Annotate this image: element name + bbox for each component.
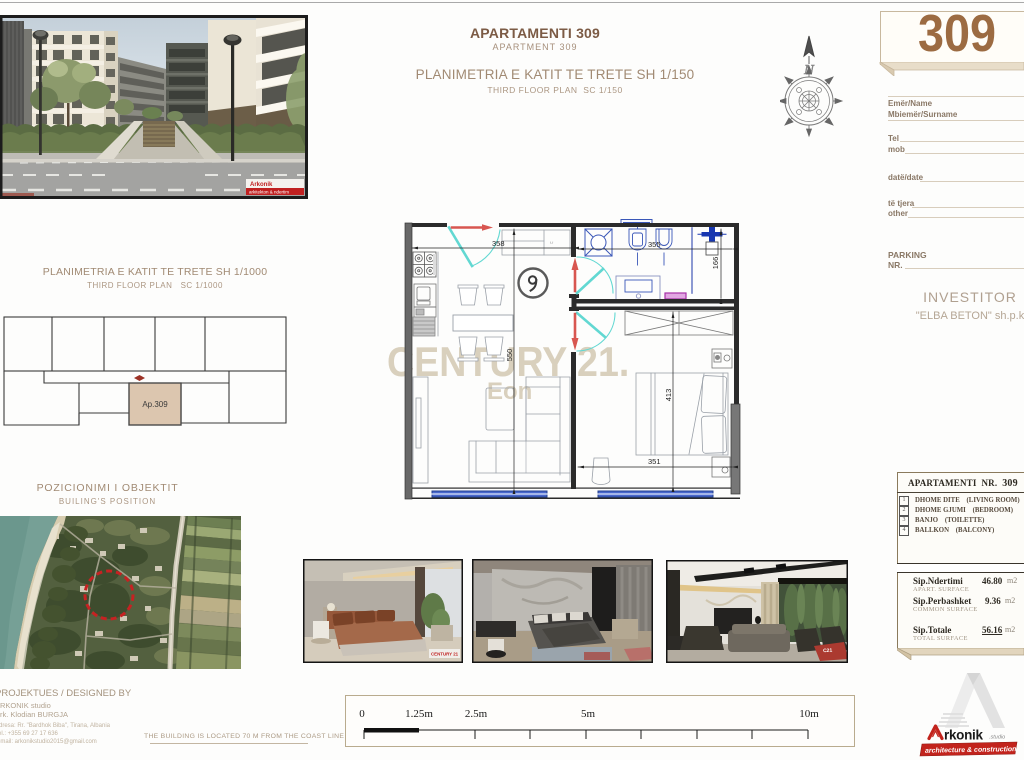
svg-text:10m: 10m xyxy=(799,708,819,720)
svg-text:0: 0 xyxy=(359,708,365,720)
svg-text:.studio: .studio xyxy=(989,735,1005,741)
svg-text:f-f: f-f xyxy=(550,241,553,245)
svg-text:413: 413 xyxy=(664,389,673,402)
svg-text:arkitekton & ndertim: arkitekton & ndertim xyxy=(249,190,289,195)
svg-text:rkonik: rkonik xyxy=(944,728,984,743)
svg-text:Arkonik: Arkonik xyxy=(250,182,273,188)
svg-text:1.25m: 1.25m xyxy=(405,708,433,720)
svg-text:2.5m: 2.5m xyxy=(465,708,488,720)
svg-text:358: 358 xyxy=(492,239,505,248)
svg-text:5m: 5m xyxy=(581,708,596,720)
svg-text:C21: C21 xyxy=(823,648,833,654)
svg-text:550: 550 xyxy=(505,349,514,362)
svg-text:CENTURY 21: CENTURY 21 xyxy=(431,651,459,656)
svg-text:351: 351 xyxy=(648,457,661,466)
svg-text:166: 166 xyxy=(711,257,720,270)
svg-text:355: 355 xyxy=(648,240,661,249)
svg-text:Ap.309: Ap.309 xyxy=(142,400,168,409)
